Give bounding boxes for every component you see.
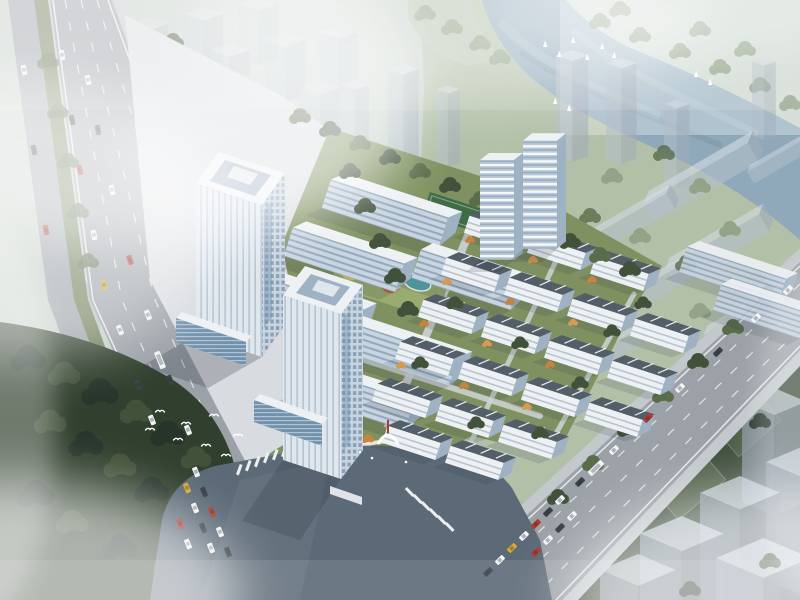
rendering-canvas: [0, 0, 800, 600]
pedestrian: [405, 461, 408, 464]
tower-face-ribs: [283, 295, 341, 479]
tower-glass-stripe: [343, 310, 350, 452]
pedestrian: [419, 451, 422, 454]
pedestrian: [371, 457, 374, 460]
top-veil: [0, 0, 800, 110]
office-tower-south: [283, 266, 363, 479]
pedestrian: [359, 451, 362, 454]
aerial-rendering: [0, 0, 800, 600]
bottom-veil: [0, 560, 800, 600]
